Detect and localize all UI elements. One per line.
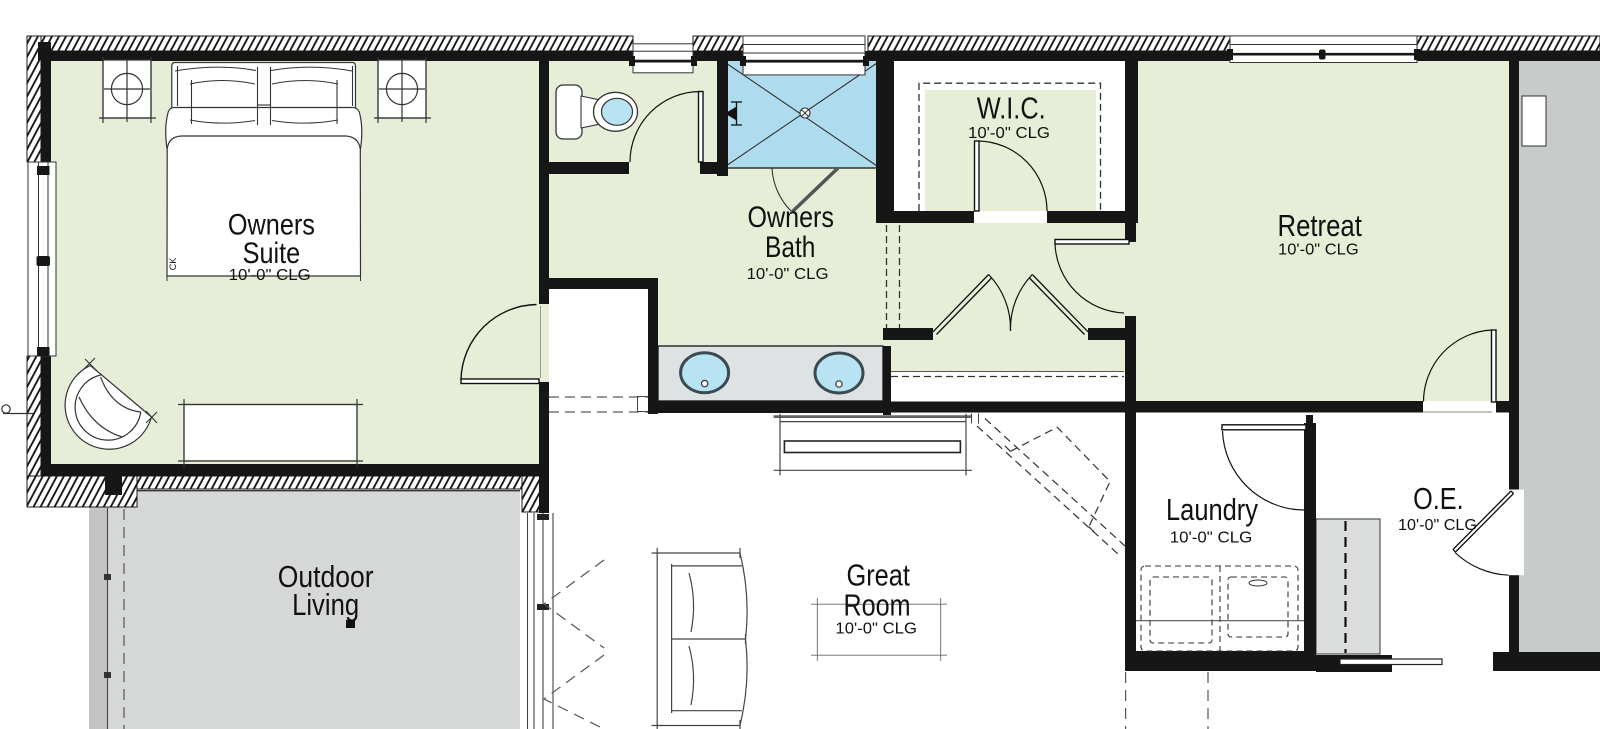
svg-text:10'-0" CLG: 10'-0" CLG [1170,530,1253,547]
svg-text:10'-0" CLG: 10'-0" CLG [835,621,917,638]
svg-text:Owners: Owners [748,201,834,234]
svg-text:10'-0" CLG: 10'-0" CLG [1278,242,1359,259]
svg-text:Bath: Bath [765,231,815,264]
svg-text:Laundry: Laundry [1166,492,1258,527]
svg-text:W.I.C.: W.I.C. [977,91,1046,126]
svg-text:Suite: Suite [243,237,301,270]
svg-text:10'-0" CLG: 10'-0" CLG [747,266,829,283]
svg-text:O.E.: O.E. [1413,481,1464,516]
svg-text:10'-0" CLG: 10'-0" CLG [1398,517,1477,534]
svg-text:Room: Room [844,588,911,623]
svg-text:Living: Living [292,587,359,622]
svg-text:Retreat: Retreat [1278,208,1363,243]
svg-text:10'-0" CLG: 10'-0" CLG [968,125,1050,142]
svg-text:10'-0" CLG: 10'-0" CLG [229,267,311,284]
svg-text:CK: CK [168,258,178,271]
